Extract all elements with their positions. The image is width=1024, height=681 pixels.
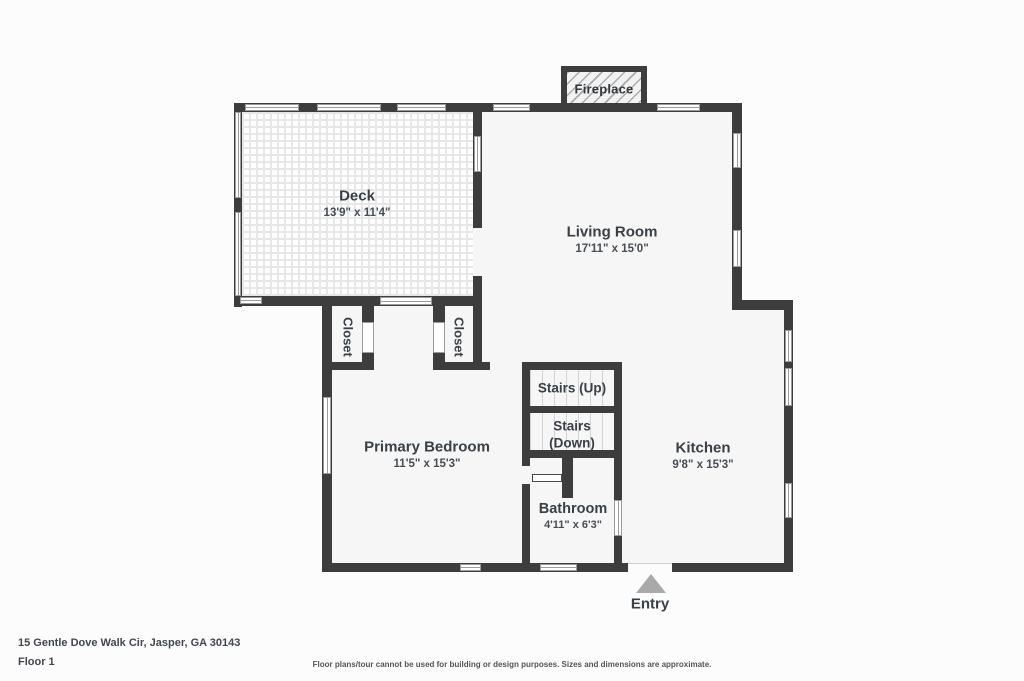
wall-segment xyxy=(522,362,622,370)
wall-segment xyxy=(522,406,622,413)
window xyxy=(240,297,262,304)
wall-segment xyxy=(433,305,445,322)
disclaimer-text: Floor plans/tour cannot be used for buil… xyxy=(313,660,712,669)
floor-plan: Deck 13'9" x 11'4" Living Room 17'11" x … xyxy=(0,0,1024,681)
deck-railing xyxy=(235,112,241,198)
living-room-label: Living Room xyxy=(567,224,658,241)
wall-segment xyxy=(362,353,374,370)
kitchen-label: Kitchen xyxy=(675,440,730,457)
primary-bedroom-label: Primary Bedroom xyxy=(364,439,490,456)
window xyxy=(785,330,792,362)
floor-number: Floor 1 xyxy=(18,656,55,668)
window xyxy=(474,136,481,172)
kitchen-floor xyxy=(622,300,784,563)
stairs-down-label-line1: Stairs xyxy=(553,419,591,434)
window xyxy=(785,368,792,406)
deck-dimensions: 13'9" x 11'4" xyxy=(324,207,391,219)
property-address: 15 Gentle Dove Walk Cir, Jasper, GA 3014… xyxy=(18,637,240,649)
window xyxy=(323,397,331,474)
window xyxy=(493,104,530,111)
deck-railing xyxy=(317,104,381,111)
window xyxy=(733,133,741,168)
stairs-down-label-line2: (Down) xyxy=(549,436,595,451)
entry-label: Entry xyxy=(631,596,669,613)
deck-railing xyxy=(235,212,241,296)
wall-segment xyxy=(614,362,622,572)
stairs-up-label: Stairs (Up) xyxy=(538,381,606,396)
bathroom-dimensions: 4'11" x 6'3" xyxy=(544,519,602,531)
deck-slider-door xyxy=(380,297,432,305)
fireplace-label: Fireplace xyxy=(575,82,634,97)
bathroom-door xyxy=(532,474,562,482)
window xyxy=(540,564,577,571)
window xyxy=(657,104,700,111)
door-opening xyxy=(614,500,622,536)
window xyxy=(785,483,792,518)
deck-railing xyxy=(245,104,299,111)
closet-door-opening xyxy=(433,322,445,353)
window xyxy=(733,230,741,267)
primary-bedroom-dimensions: 11'5" x 15'3" xyxy=(394,458,461,470)
living-room-floor xyxy=(482,103,732,310)
bathroom-label: Bathroom xyxy=(539,501,607,517)
wall-segment xyxy=(433,362,490,370)
closet-right-label: Closet xyxy=(452,317,467,357)
door-opening xyxy=(473,228,482,276)
deck-railing xyxy=(397,104,446,111)
wall-segment xyxy=(562,458,573,498)
wall-segment xyxy=(522,450,622,458)
entry-door-opening xyxy=(628,563,672,572)
kitchen-dimensions: 9'8" x 15'3" xyxy=(672,459,733,471)
bathroom-door-opening xyxy=(522,466,530,484)
entry-arrow-icon xyxy=(636,574,666,593)
closet-door-opening xyxy=(362,322,374,353)
wall-segment xyxy=(362,305,374,322)
living-room-dimensions: 17'11" x 15'0" xyxy=(575,243,648,255)
window xyxy=(460,564,481,571)
closet-left-label: Closet xyxy=(341,317,356,357)
deck-label: Deck xyxy=(339,188,375,205)
